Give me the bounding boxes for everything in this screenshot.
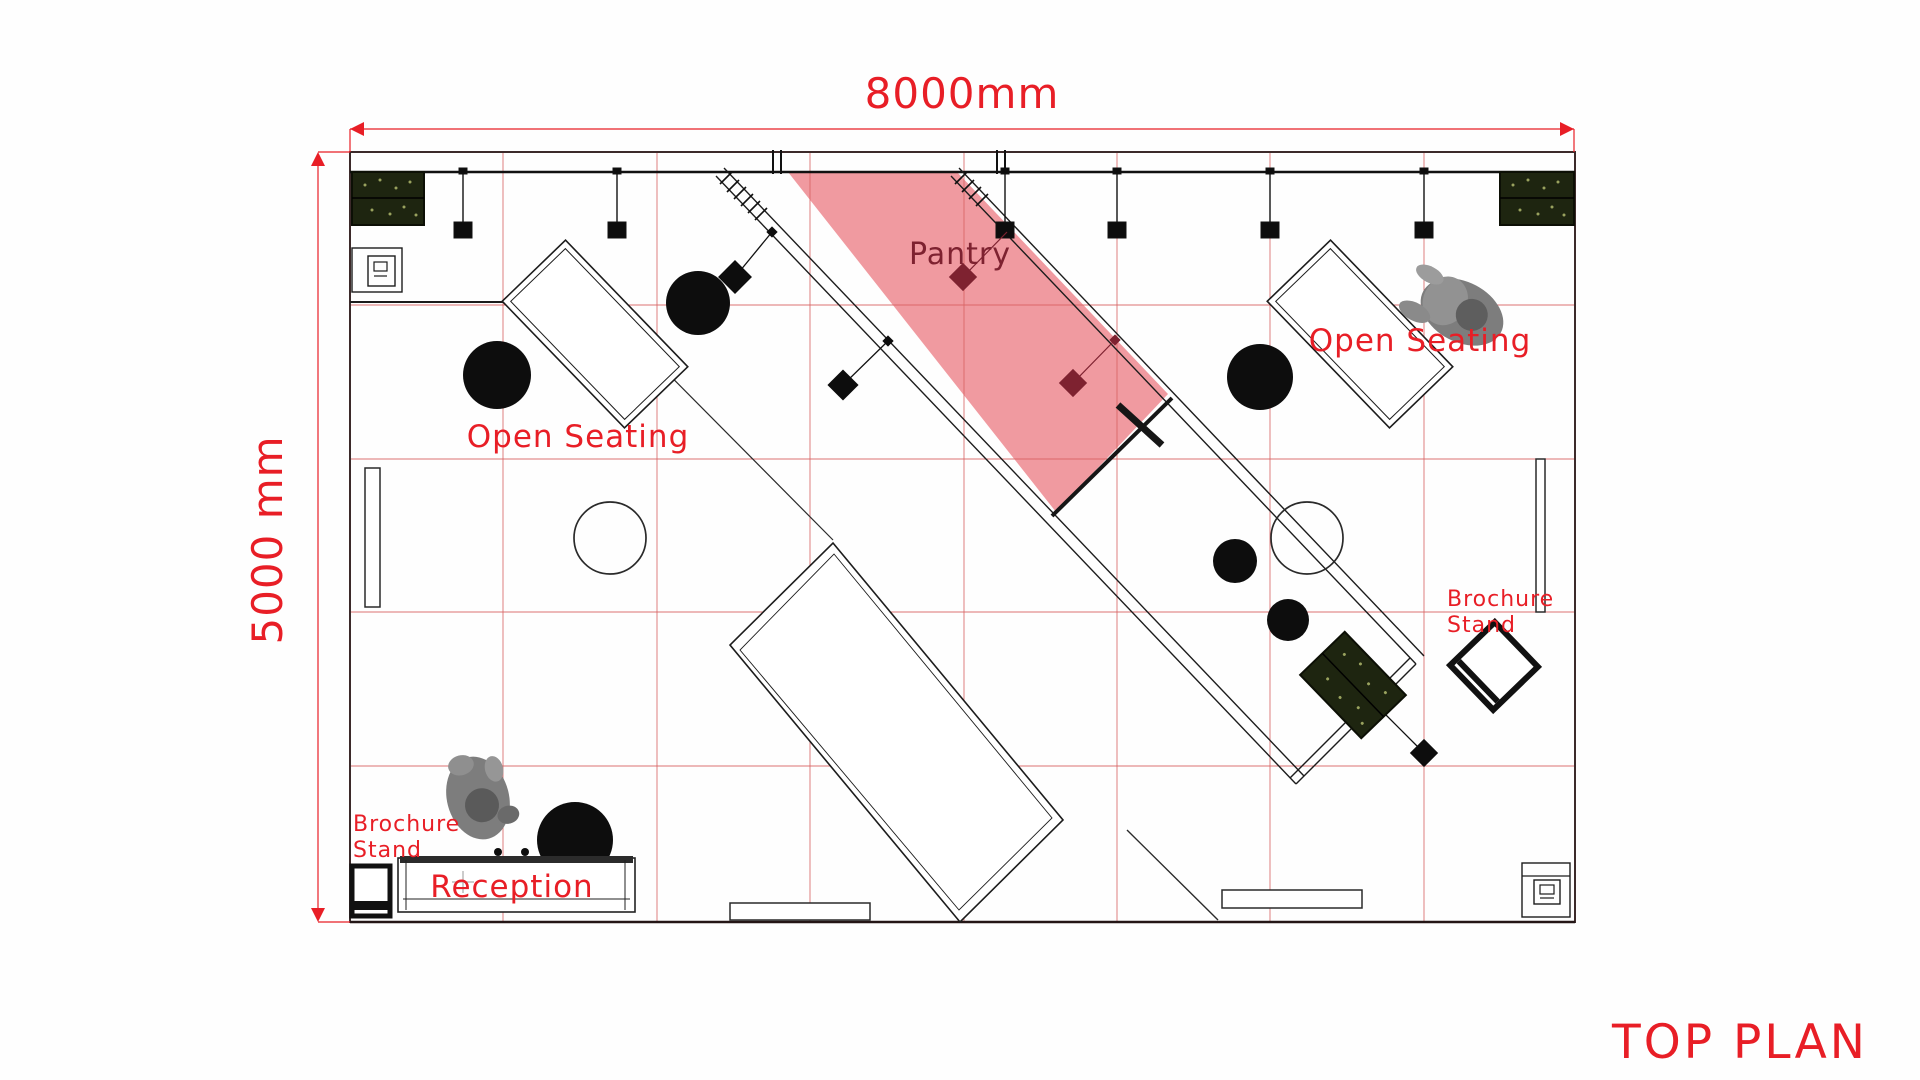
round-table-left — [574, 502, 646, 574]
chair — [463, 341, 531, 409]
brochure-stand-right-label-line1: Brochure — [1447, 587, 1554, 612]
dimension-height: 5000 mm — [243, 152, 350, 922]
chair — [666, 271, 730, 335]
spotlight-icon — [827, 335, 893, 400]
spotlight-icon — [718, 226, 778, 294]
brochure-stand-left-label-line2: Stand — [353, 838, 422, 863]
service-icon-bottom-right — [1522, 863, 1570, 917]
wall-bench-bottom-left — [730, 903, 870, 920]
planter-box-corridor — [1300, 632, 1406, 738]
pantry-label: Pantry — [909, 237, 1011, 272]
drawing-title: TOP PLAN — [1611, 1015, 1868, 1070]
floor-plan-page: 8000mm 5000 mm Pantry Open Seating Open … — [0, 0, 1920, 1080]
open-seating-table-left — [502, 240, 688, 428]
wall-bench-left — [365, 468, 380, 607]
height-dimension-label: 5000 mm — [243, 435, 292, 644]
pendant-light-icon — [1415, 168, 1433, 238]
open-seating-right-label: Open Seating — [1309, 323, 1532, 359]
dimension-width: 8000mm — [350, 69, 1574, 152]
pendant-light-icon — [1261, 168, 1279, 238]
planter-box-top-left — [352, 172, 424, 225]
brochure-stand-left — [352, 866, 390, 916]
wall-bench-bottom-right — [1222, 890, 1362, 908]
planter-box-top-right — [1500, 172, 1574, 225]
diagonal-partition — [1127, 830, 1218, 920]
service-icon-top-left — [352, 248, 402, 292]
chair — [1213, 539, 1257, 583]
width-dimension-label: 8000mm — [865, 69, 1060, 118]
arrow-down-icon — [311, 908, 325, 922]
pendant-light-icon — [608, 168, 626, 238]
chair — [1267, 599, 1309, 641]
pendant-light-icon — [1108, 168, 1126, 238]
chair — [1227, 344, 1293, 410]
pendant-light-icon — [454, 168, 472, 238]
brochure-stand-right-label-line2: Stand — [1447, 613, 1516, 638]
open-seating-left-label: Open Seating — [467, 419, 690, 455]
display-counter — [730, 543, 1063, 922]
arrow-up-icon — [311, 152, 325, 166]
round-table-right — [1271, 502, 1343, 574]
pendant-light-icon — [996, 168, 1014, 238]
reception-label: Reception — [430, 869, 593, 905]
arrow-right-icon — [1560, 122, 1574, 136]
arrow-left-icon — [350, 122, 364, 136]
top-plan-drawing: 8000mm 5000 mm Pantry Open Seating Open … — [0, 0, 1920, 1080]
brochure-stand-left-label-line1: Brochure — [353, 812, 460, 837]
